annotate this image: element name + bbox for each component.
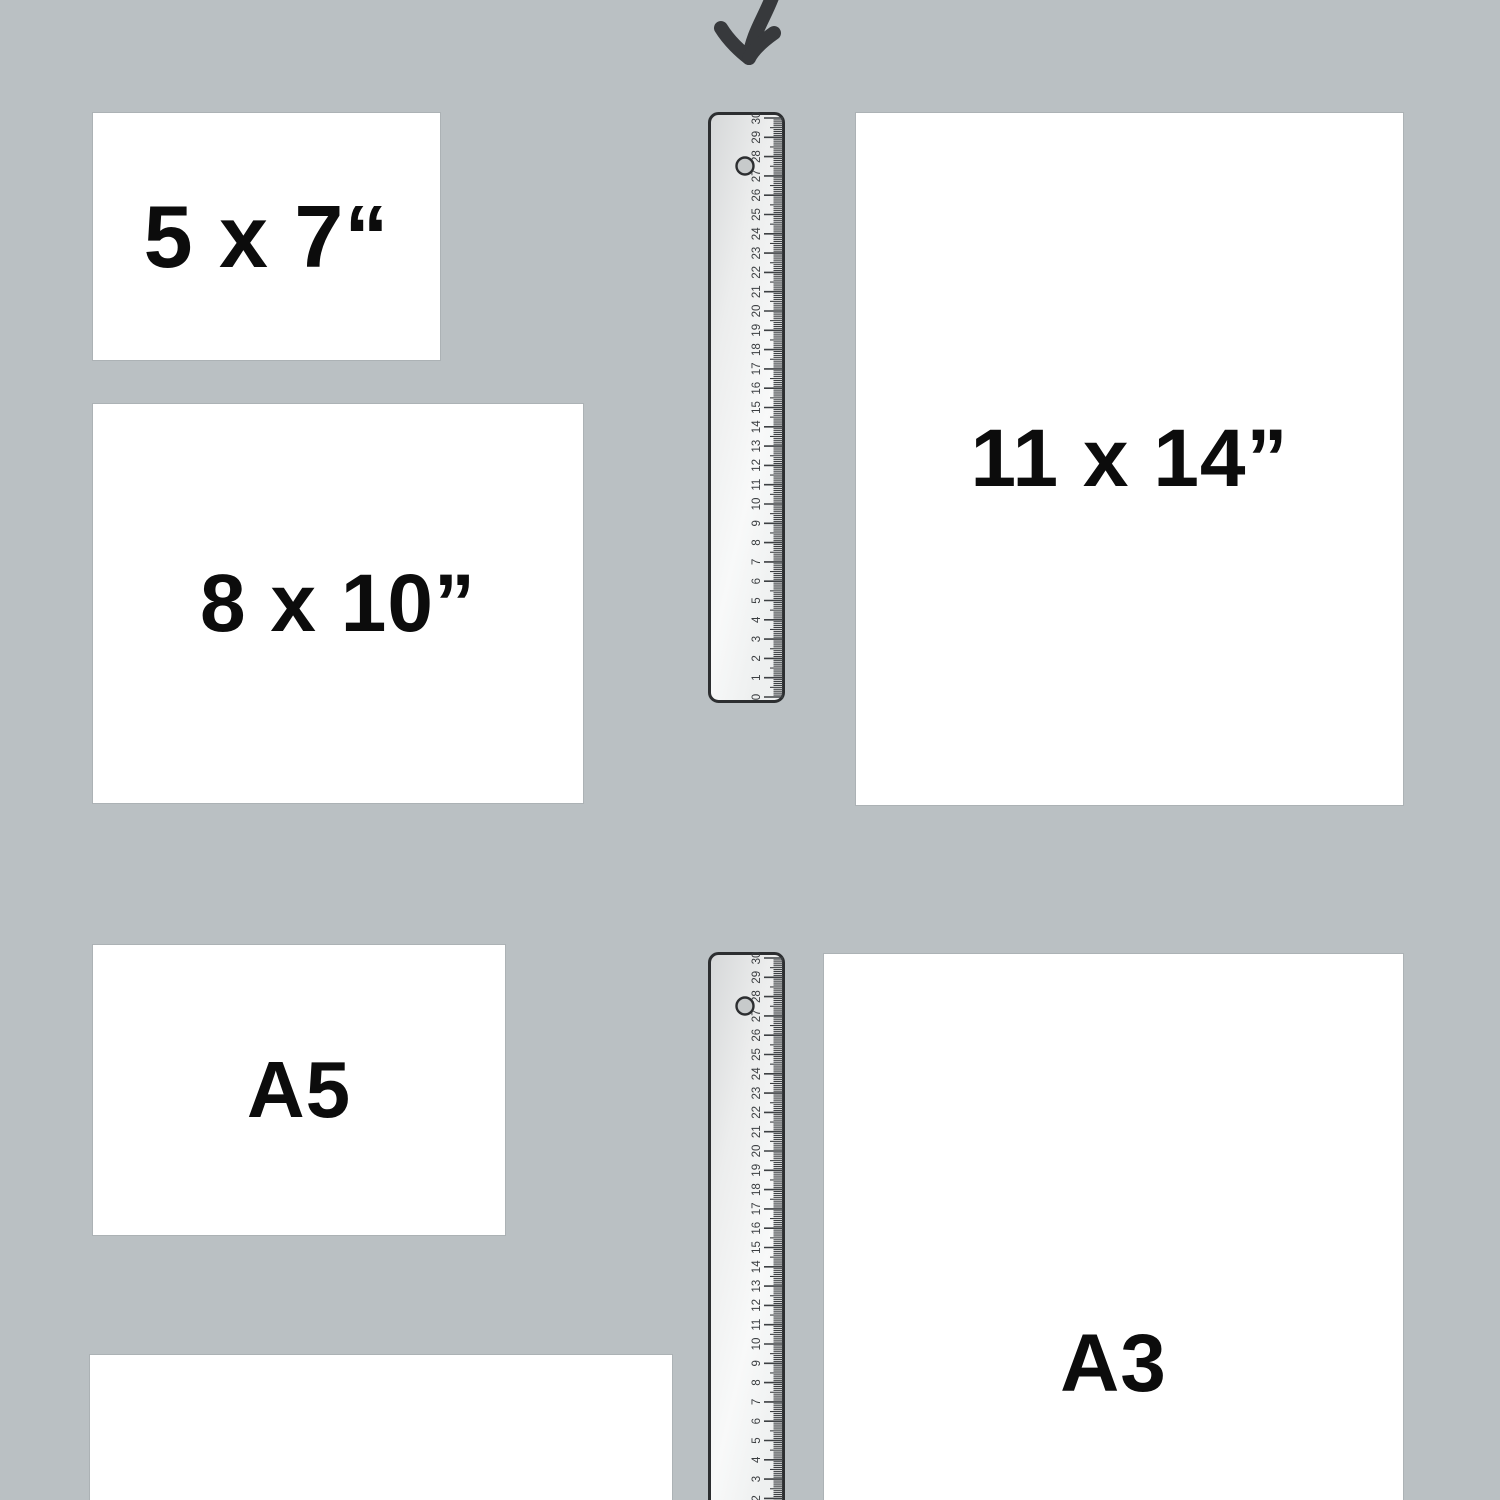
ruler-number-16: 16	[751, 382, 763, 395]
ruler-number-19: 19	[751, 1164, 763, 1177]
ruler-number-11: 11	[751, 1319, 763, 1331]
ruler-number-16: 16	[751, 1222, 763, 1235]
ruler-number-5: 5	[751, 1437, 763, 1443]
ruler-number-10: 10	[751, 498, 763, 511]
ruler-number-24: 24	[751, 227, 763, 240]
ruler-number-7: 7	[751, 559, 763, 565]
ruler-scale: 0123456789101112131415161718192021222324…	[708, 112, 785, 703]
ruler-number-21: 21	[751, 285, 763, 298]
ruler-number-4: 4	[751, 616, 763, 623]
ruler-number-13: 13	[751, 440, 763, 453]
ruler-number-26: 26	[751, 1029, 763, 1042]
ruler-number-14: 14	[751, 1260, 763, 1273]
ruler-number-15: 15	[751, 401, 763, 414]
ruler-number-24: 24	[751, 1067, 763, 1080]
ruler-number-29: 29	[751, 971, 763, 984]
ruler-number-8: 8	[751, 1379, 763, 1385]
ruler-number-2: 2	[751, 1495, 763, 1500]
ruler-number-22: 22	[751, 266, 763, 279]
ruler-number-9: 9	[751, 1360, 763, 1366]
ruler-number-14: 14	[751, 420, 763, 433]
arrow-down-icon	[695, 0, 805, 85]
ruler-number-15: 15	[751, 1241, 763, 1254]
ruler-number-7: 7	[751, 1399, 763, 1405]
ruler-number-13: 13	[751, 1280, 763, 1293]
ruler-hole	[737, 158, 754, 175]
ruler-number-12: 12	[751, 459, 763, 472]
ruler-number-25: 25	[751, 208, 763, 221]
ruler-number-20: 20	[751, 1145, 763, 1158]
ruler-number-3: 3	[751, 636, 763, 642]
ruler-number-1: 1	[751, 674, 763, 680]
paper-a5: A5	[93, 945, 505, 1235]
paper-label-a5: A5	[247, 1050, 351, 1130]
ruler-number-30: 30	[751, 952, 763, 964]
ruler-number-23: 23	[751, 1087, 763, 1100]
ruler-1: 0123456789101112131415161718192021222324…	[708, 112, 785, 703]
ruler-number-29: 29	[751, 131, 763, 144]
ruler-number-11: 11	[751, 479, 763, 491]
ruler-number-18: 18	[751, 343, 763, 356]
ruler-number-18: 18	[751, 1183, 763, 1196]
ruler-number-6: 6	[751, 578, 763, 584]
size-comparison-diagram: 5 x 7“8 x 10”11 x 14”A5A3 01234567891011…	[0, 0, 1500, 1500]
ruler-number-0: 0	[751, 694, 763, 700]
ruler-number-19: 19	[751, 324, 763, 337]
ruler-number-30: 30	[751, 112, 763, 124]
paper-label-5x7: 5 x 7“	[144, 193, 390, 281]
ruler-number-26: 26	[751, 189, 763, 202]
paper-8x10: 8 x 10”	[93, 404, 583, 803]
ruler-number-23: 23	[751, 247, 763, 260]
ruler-number-25: 25	[751, 1048, 763, 1061]
ruler-number-6: 6	[751, 1418, 763, 1424]
ruler-number-5: 5	[751, 597, 763, 603]
ruler-hole	[737, 998, 754, 1015]
paper-11x14: 11 x 14”	[856, 113, 1403, 805]
ruler-number-4: 4	[751, 1456, 763, 1463]
ruler-number-10: 10	[751, 1338, 763, 1351]
ruler-number-8: 8	[751, 539, 763, 545]
paper-label-a3: A3	[1060, 1323, 1167, 1405]
ruler-number-2: 2	[751, 655, 763, 661]
paper-label-8x10: 8 x 10”	[200, 563, 476, 645]
ruler-number-9: 9	[751, 520, 763, 526]
paper-a3: A3	[824, 954, 1403, 1500]
ruler-number-17: 17	[751, 1203, 763, 1216]
ruler-number-20: 20	[751, 305, 763, 318]
ruler-number-21: 21	[751, 1125, 763, 1138]
paper-5x7: 5 x 7“	[93, 113, 440, 360]
ruler-scale: 0123456789101112131415161718192021222324…	[708, 952, 785, 1500]
paper-label-11x14: 11 x 14”	[970, 418, 1288, 500]
ruler-number-12: 12	[751, 1299, 763, 1312]
ruler-number-22: 22	[751, 1106, 763, 1119]
ruler-number-17: 17	[751, 363, 763, 376]
ruler-2: 0123456789101112131415161718192021222324…	[708, 952, 785, 1500]
paper-partial-bottom-left	[90, 1355, 672, 1500]
ruler-number-3: 3	[751, 1476, 763, 1482]
